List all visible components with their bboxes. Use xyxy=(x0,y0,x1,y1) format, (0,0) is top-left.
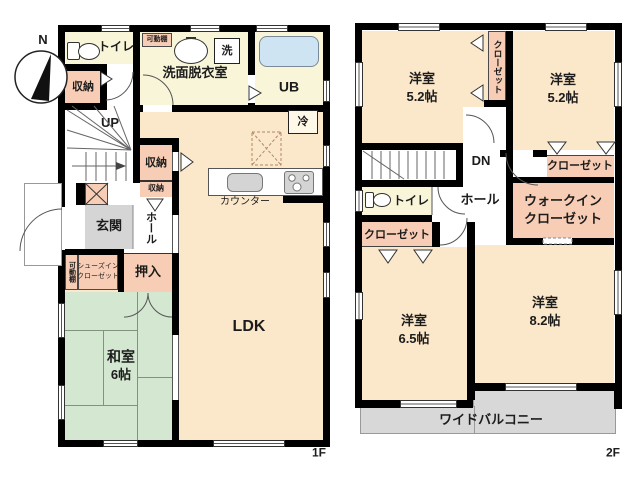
f2-wall xyxy=(362,180,463,187)
f2-wall xyxy=(484,100,513,107)
window xyxy=(545,23,587,31)
window xyxy=(355,292,363,320)
toilet-bowl-icon xyxy=(373,193,391,207)
window xyxy=(505,383,577,391)
label-bedroom-ne-line2: 5.2帖 xyxy=(547,91,578,105)
f2-wall xyxy=(506,31,513,245)
label-closet-west: クローゼット xyxy=(364,229,430,241)
label-bedroom-nw-line1: 洋室 xyxy=(409,72,435,86)
label-bedroom-sw-line1: 洋室 xyxy=(401,314,427,328)
f2-wall xyxy=(533,150,547,157)
label-bedroom-sw-line2: 6.5帖 xyxy=(398,332,429,346)
label-balcony: ワイドバルコニー xyxy=(439,413,543,427)
label-closet-east: クローゼット xyxy=(547,160,613,172)
label-bedroom-ne-line1: 洋室 xyxy=(550,73,576,87)
label-bedroom-se-line2: 8.2帖 xyxy=(529,314,560,328)
f2-wall xyxy=(432,222,440,247)
f2-wall xyxy=(506,177,614,183)
window xyxy=(398,23,440,31)
window xyxy=(614,62,622,107)
f2-wall xyxy=(506,238,614,245)
label-closet-vertical: クローゼット xyxy=(493,40,502,94)
floor2-plan: 洋室 5.2帖 クローゼット 洋室 5.2帖 DN トイレ ホール クローゼット… xyxy=(0,0,640,480)
label-bedroom-se-line1: 洋室 xyxy=(532,296,558,310)
window xyxy=(614,270,622,315)
label-dn: DN xyxy=(472,154,491,168)
f2-wall xyxy=(362,215,432,222)
label-walkin-line1: ウォークイン xyxy=(524,194,602,208)
f2-wall xyxy=(500,150,506,157)
label-toilet-2f: トイレ xyxy=(393,194,429,207)
window xyxy=(400,400,457,408)
label-walkin-line2: クローゼット xyxy=(524,212,602,226)
f2-wall xyxy=(362,143,463,150)
floor-plan-canvas: トイレ 可動棚 洗面脱衣室 洗 UB 収納 UP 収納 収納 冷 カウンター 玄… xyxy=(0,0,640,480)
f2-stairs xyxy=(362,150,456,180)
f2-wall-stub xyxy=(614,383,622,409)
window xyxy=(355,62,363,107)
f2-wall xyxy=(467,222,475,400)
label-bedroom-nw-line2: 5.2帖 xyxy=(406,90,437,104)
label-floor2: 2F xyxy=(606,446,620,459)
window xyxy=(355,190,363,212)
label-hall-2f: ホール xyxy=(460,193,499,207)
